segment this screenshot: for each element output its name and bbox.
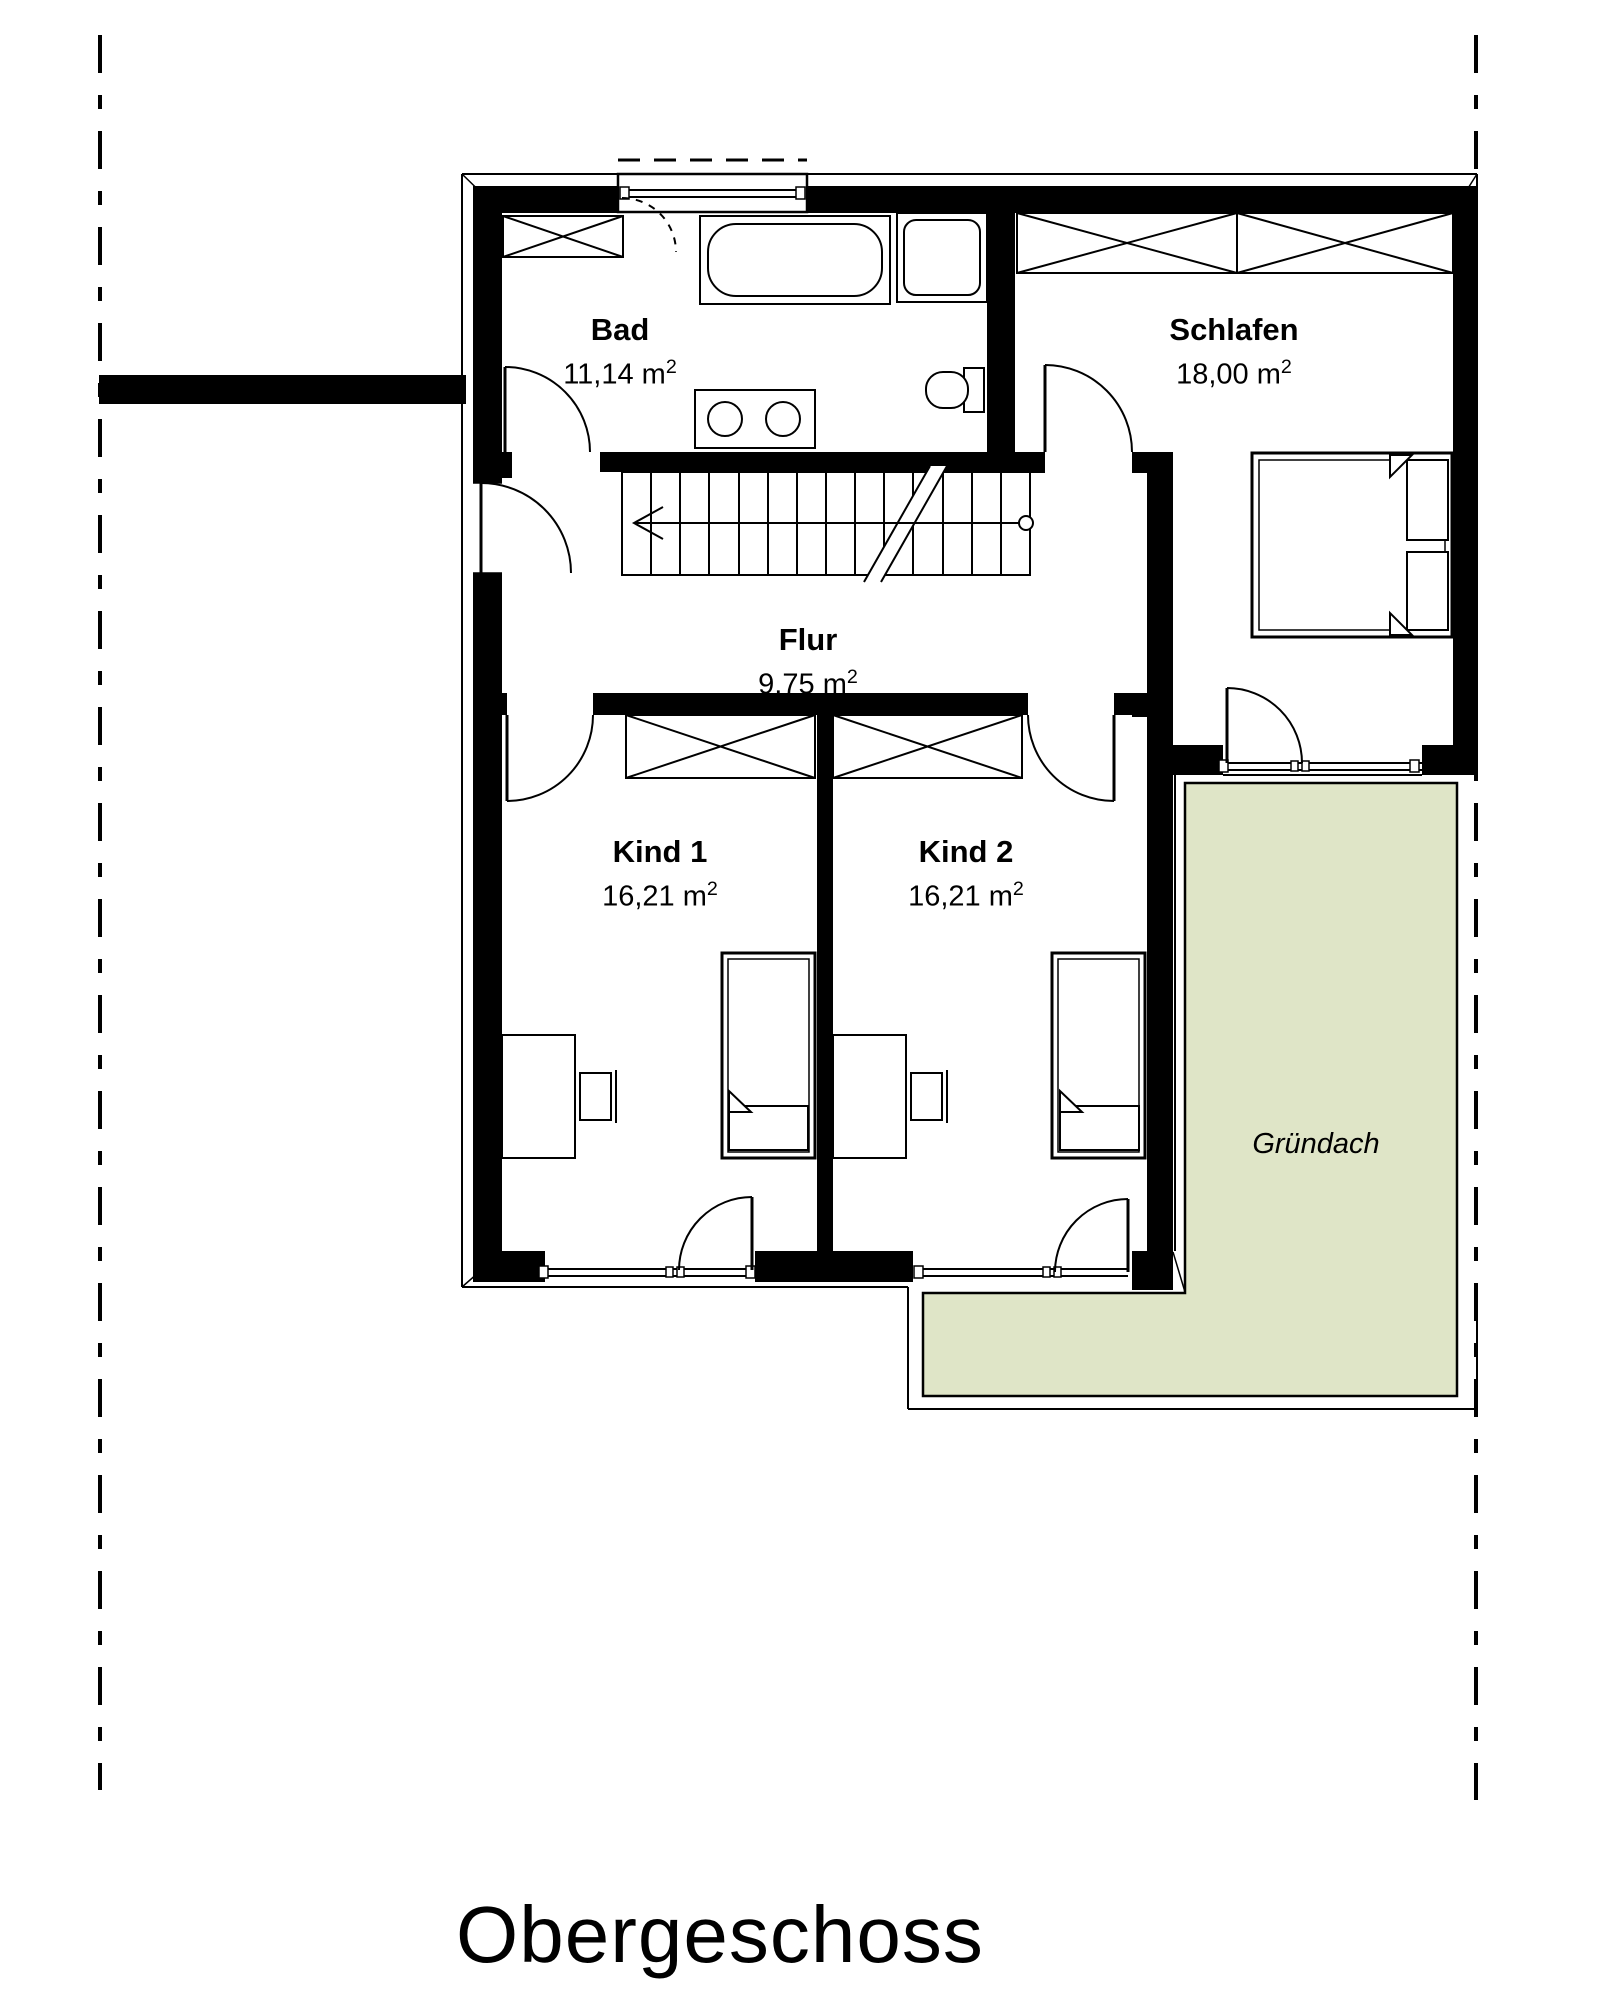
room-area: 18,00 m2 [1169,357,1298,392]
double-sink-vanity [695,390,815,448]
pillow [1407,460,1448,540]
kind2-bed [1052,953,1145,1158]
schlafen-door [1045,365,1132,452]
pillow [1407,552,1448,630]
room-area: 9,75 m2 [758,667,858,702]
room-name: Kind 1 [602,834,718,870]
double-bed [1252,453,1452,637]
shower [897,213,987,302]
room-name: Schlafen [1169,312,1298,348]
terrace-door [1219,688,1422,772]
kind1-bed [722,953,815,1158]
kind1-door [507,715,593,801]
sheet-title: Obergeschoss [456,1895,984,1975]
toilet [926,368,984,412]
stair-direction-origin [1019,516,1033,530]
green-roof-label: Gründach [1252,1128,1379,1161]
kind1-chair [580,1073,611,1120]
floor-plan-drawing [0,0,1600,2002]
room-name: Kind 2 [908,834,1024,870]
kind1-window [539,1197,755,1278]
staircase [622,466,1033,582]
kind2-door [1028,715,1114,801]
room-area: 16,21 m2 [908,879,1024,914]
kind1-desk [502,1035,616,1158]
kind2-window [914,1199,1128,1278]
kind2-chair [911,1073,942,1120]
room-label-flur: Flur 9,75 m2 [758,622,858,701]
wardrobe-schlafen [1017,213,1453,273]
kind2-desk [833,1035,947,1158]
room-label-schlafen: Schlafen 18,00 m2 [1169,312,1298,391]
room-name: Bad [563,312,677,348]
adjacent-roof-wall-stub [99,375,466,404]
room-label-kind2: Kind 2 16,21 m2 [908,834,1024,913]
wardrobe-bad [503,216,623,257]
floor-plan-page: Bad 11,14 m2 Schlafen 18,00 m2 Flur 9,75… [0,0,1600,2002]
wardrobe-kind1 [626,715,815,778]
room-label-kind1: Kind 1 16,21 m2 [602,834,718,913]
room-name: Flur [758,622,858,658]
hall-roof-access-door [473,483,571,573]
bathtub [700,216,890,304]
wardrobe-kind2 [833,715,1022,778]
room-area: 16,21 m2 [602,879,718,914]
room-area: 11,14 m2 [563,357,677,392]
room-label-bad: Bad 11,14 m2 [563,312,677,391]
